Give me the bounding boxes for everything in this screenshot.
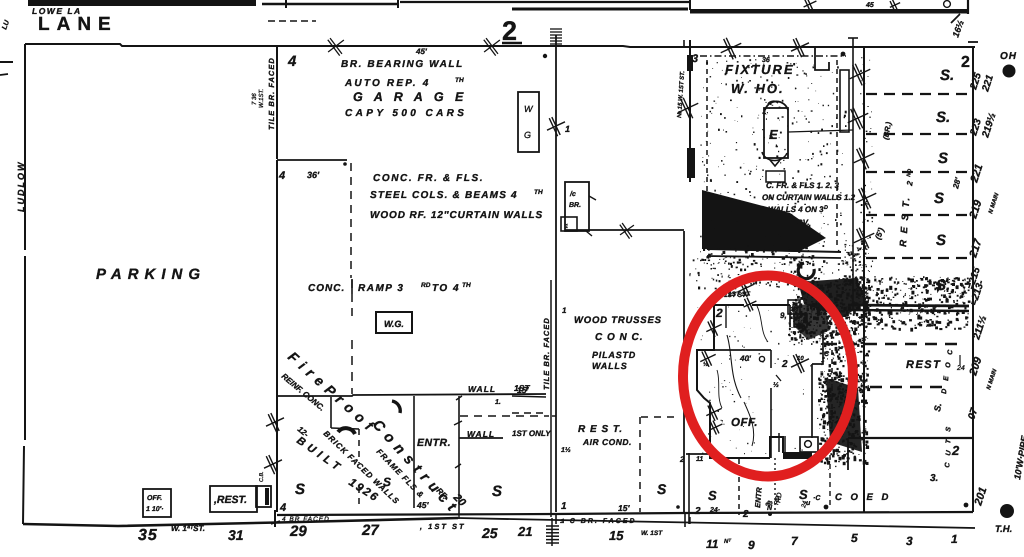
svg-text:PILASTD: PILASTD: [592, 350, 636, 360]
svg-text:CONC. FR. & FLS.: CONC. FR. & FLS.: [373, 173, 484, 184]
svg-text:1: 1: [565, 124, 570, 134]
svg-text:RAMP 3: RAMP 3: [358, 283, 404, 294]
svg-text:3.: 3.: [930, 473, 938, 484]
svg-text:3: 3: [906, 534, 913, 548]
svg-text:15′: 15′: [618, 503, 630, 513]
svg-text:½: ½: [773, 382, 779, 389]
svg-text:2: 2: [715, 306, 723, 320]
svg-text:CAPY 500 CARS: CAPY 500 CARS: [345, 108, 467, 119]
svg-text:4 BR FACED: 4 BR FACED: [282, 516, 330, 523]
svg-text:2: 2: [694, 506, 701, 517]
svg-text:11: 11: [696, 456, 703, 463]
svg-text:29: 29: [289, 523, 307, 540]
svg-text:1: 1: [565, 223, 568, 230]
svg-text:D: D: [941, 389, 948, 395]
svg-text:FIXTURE: FIXTURE: [725, 62, 795, 77]
svg-text:10: 10: [797, 355, 804, 362]
svg-text:2: 2: [679, 455, 685, 464]
svg-text:5: 5: [851, 531, 858, 545]
svg-text:TH: TH: [455, 77, 464, 84]
svg-text:ENTR: ENTR: [753, 486, 764, 508]
svg-text:2: 2: [951, 443, 960, 458]
svg-text:4: 4: [278, 170, 285, 182]
svg-text:1: 1: [951, 532, 958, 546]
svg-text:STEEL COLS. & BEAMS 4: STEEL COLS. & BEAMS 4: [370, 190, 518, 201]
svg-text:TH: TH: [534, 189, 543, 196]
svg-text:25: 25: [481, 525, 498, 541]
svg-text:1: 1: [561, 501, 567, 512]
svg-text:WALL: WALL: [467, 429, 495, 439]
svg-text:S: S: [492, 483, 502, 500]
svg-text:WOOD TRUSSES: WOOD TRUSSES: [574, 315, 662, 326]
svg-text:C.B.: C.B.: [259, 471, 265, 482]
svg-text:BR.: BR.: [569, 202, 581, 209]
svg-text:AUTO REP. 4: AUTO REP. 4: [344, 78, 431, 89]
svg-text:S.: S.: [940, 67, 954, 84]
svg-text:24: 24: [956, 365, 965, 372]
svg-text:W.1ST.: W.1ST.: [258, 89, 265, 108]
svg-text:S: S: [383, 475, 391, 489]
svg-text:ON CURTAIN WALLS 1.2: ON CURTAIN WALLS 1.2: [762, 193, 856, 202]
svg-text:E: E: [769, 127, 778, 142]
svg-text:S: S: [295, 481, 305, 498]
svg-text:W.G.: W.G.: [384, 319, 404, 329]
svg-text:REST: REST: [906, 359, 941, 371]
svg-text:9,: 9,: [780, 311, 787, 320]
svg-text:OFF.: OFF.: [731, 417, 758, 429]
svg-text:2: 2: [502, 16, 517, 46]
svg-text:2: 2: [781, 359, 788, 370]
svg-text:TILE BR. FACED: TILE BR. FACED: [542, 317, 551, 390]
svg-text:C. FR. & FLS 1. 2. 3: C. FR. & FLS 1. 2. 3: [766, 181, 839, 190]
svg-text:TILE BR. FACED: TILE BR. FACED: [267, 57, 276, 130]
svg-text:2: 2: [961, 54, 970, 71]
svg-text:21: 21: [517, 524, 532, 539]
svg-text:S: S: [708, 488, 717, 503]
svg-text:9: 9: [748, 538, 755, 552]
svg-text:2: 2: [742, 509, 749, 520]
svg-text:45: 45: [865, 2, 874, 9]
svg-text:35: 35: [138, 527, 158, 544]
svg-text:15: 15: [609, 528, 624, 543]
svg-text:OFF.: OFF.: [147, 495, 162, 502]
svg-text:S: S: [936, 232, 946, 249]
svg-text:1: 1: [562, 306, 567, 315]
svg-text:½: ½: [703, 361, 708, 368]
svg-text:LUDLOW: LUDLOW: [16, 161, 26, 213]
svg-text:1ST ST: 1ST ST: [728, 291, 751, 298]
svg-text:C O N C.: C O N C.: [595, 332, 644, 343]
svg-text:≤ C BR. FACED: ≤ C BR. FACED: [560, 518, 637, 525]
svg-text:, 1ST ST: , 1ST ST: [419, 522, 466, 531]
svg-text:G: G: [524, 130, 531, 140]
svg-text:36′: 36′: [307, 170, 320, 180]
svg-text:31: 31: [228, 527, 244, 543]
svg-text:LANE: LANE: [38, 14, 118, 35]
svg-text:11: 11: [706, 537, 719, 551]
svg-text:TH: TH: [462, 282, 471, 289]
svg-text:S: S: [657, 481, 667, 497]
svg-text:1 10′·: 1 10′·: [146, 506, 164, 513]
svg-text:45′: 45′: [416, 500, 429, 510]
svg-text:G A R A G E: G A R A G E: [353, 90, 467, 104]
svg-text:,REST.: ,REST.: [213, 494, 247, 506]
svg-text:T.H.: T.H.: [995, 524, 1012, 535]
svg-text:BR. BEARING WALL: BR. BEARING WALL: [341, 59, 464, 70]
svg-text:D: D: [824, 205, 828, 211]
svg-text:WALL: WALL: [468, 384, 496, 394]
svg-text:OH: OH: [1000, 51, 1017, 62]
svg-text:1ST ONLY: 1ST ONLY: [512, 429, 551, 438]
svg-text:4: 4: [287, 53, 297, 70]
svg-text:3: 3: [692, 53, 698, 65]
svg-text:Nᵀ: Nᵀ: [724, 538, 731, 545]
svg-text:W. 1ªᵀST.: W. 1ªᵀST.: [171, 524, 205, 533]
svg-text:R E S T.: R E S T.: [578, 424, 623, 435]
svg-text:S.: S.: [936, 109, 950, 126]
svg-text:CONC.: CONC.: [308, 283, 345, 294]
svg-text:WALLS: WALLS: [592, 361, 628, 371]
svg-text:AIR COND.: AIR COND.: [582, 437, 632, 447]
svg-text:W. 1ST: W. 1ST: [641, 530, 663, 537]
svg-text:C O E D: C O E D: [835, 492, 891, 503]
svg-text:S.: S.: [932, 402, 943, 412]
svg-text:ENTR.: ENTR.: [417, 437, 451, 449]
svg-text:S: S: [938, 150, 948, 167]
svg-text:27: 27: [361, 522, 379, 539]
svg-text:RD: RD: [421, 282, 431, 289]
svg-text:/c: /c: [569, 190, 576, 198]
svg-text:40′: 40′: [739, 354, 752, 363]
svg-text:TO 4: TO 4: [432, 283, 460, 294]
svg-text:1.: 1.: [495, 399, 501, 406]
svg-text:·C: ·C: [813, 495, 821, 502]
svg-text:S: S: [934, 190, 944, 207]
svg-text:WOOD RF. 12″CURTAIN WALLS: WOOD RF. 12″CURTAIN WALLS: [370, 210, 543, 221]
svg-text:4: 4: [279, 502, 286, 514]
svg-text:15′: 15′: [517, 385, 529, 395]
svg-text:PARKING: PARKING: [96, 266, 206, 283]
svg-text:7 36: 7 36: [251, 93, 258, 105]
svg-text:1½: 1½: [561, 447, 571, 454]
svg-text:45′: 45′: [415, 47, 428, 56]
